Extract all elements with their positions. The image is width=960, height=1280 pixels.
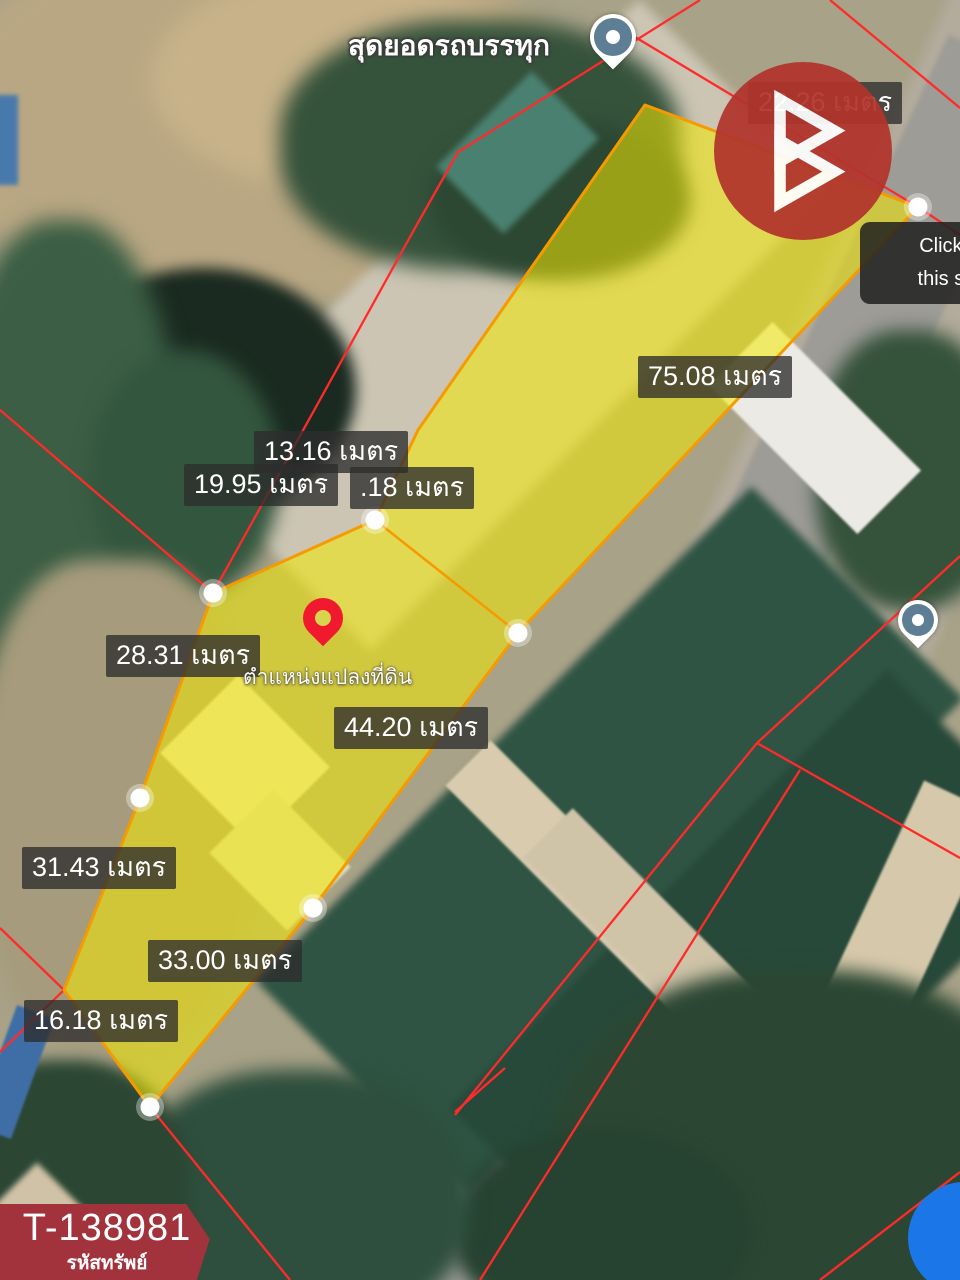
- plot-pin-hole: [312, 607, 335, 630]
- measurement-label: 44.20 เมตร: [334, 707, 488, 749]
- poi-label: สุดยอดรถบรรทุก: [348, 24, 550, 68]
- plot-pin-caption: ตำแหน่งแปลงที่ดิน: [243, 661, 412, 694]
- measurement-label: 75.08 เมตร: [638, 356, 792, 398]
- measurement-label: 33.00 เมตร: [148, 940, 302, 982]
- parcel-boundary-line: [455, 556, 960, 1115]
- measurement-label: 19.95 เมตร: [184, 464, 338, 506]
- measurement-label: 31.43 เมตร: [22, 847, 176, 889]
- measurement-label: .18 เมตร: [350, 467, 474, 509]
- measurement-label: 16.18 เมตร: [24, 1000, 178, 1042]
- plot-vertex-handle[interactable]: [909, 198, 928, 217]
- tooltip-line-1: Click to: [872, 230, 960, 263]
- plot-vertex-handle[interactable]: [141, 1098, 160, 1117]
- edit-shape-tooltip: Click to this sha: [860, 222, 960, 304]
- map-screenshot: สุดยอดรถบรรทุก ตำแหน่งแปลงที่ดิน Click t…: [0, 0, 960, 1280]
- plot-vertex-handle[interactable]: [304, 899, 323, 918]
- parcel-boundary-line: [455, 1068, 505, 1112]
- tooltip-line-2: this sha: [872, 263, 960, 296]
- brand-logo: [714, 62, 892, 240]
- property-code-ribbon: T-138981 รหัสทรัพย์: [0, 1204, 214, 1280]
- parcel-boundary-line: [0, 928, 64, 990]
- plot-vertex-handle[interactable]: [509, 624, 528, 643]
- plot-vertex-handle[interactable]: [366, 511, 385, 530]
- parcel-boundary-line: [0, 410, 213, 593]
- plot-vertex-handle[interactable]: [131, 789, 150, 808]
- property-code: T-138981: [0, 1207, 214, 1250]
- property-code-label: รหัสทรัพย์: [0, 1248, 214, 1278]
- brand-logo-icon: [739, 87, 867, 215]
- parcel-boundary-line: [757, 743, 960, 858]
- measurement-label: 28.31 เมตร: [106, 635, 260, 677]
- plot-vertex-handle[interactable]: [204, 584, 223, 603]
